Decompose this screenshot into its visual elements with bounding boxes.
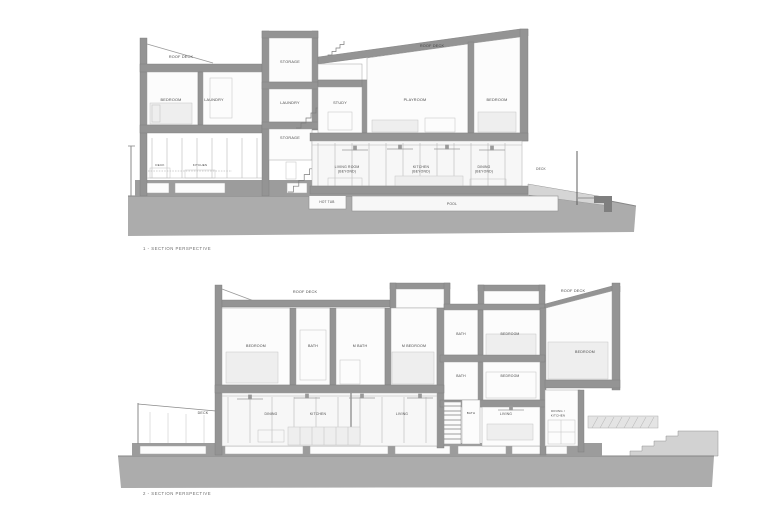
section-perspective-2-drawing: ROOF DECK BEDROOM BATH M BATH M BEDROOM … [0,260,780,520]
label-dining-beyond: DINING [477,165,490,169]
left-guardrail [128,146,135,196]
label-roof-deck-right-1: ROOF DECK [420,44,445,48]
label-dining-beyond-sub: (BEYOND) [475,170,493,174]
label-dining-kitchen-suite-1: DINING / [551,409,565,413]
label-master-bath: M BATH [353,344,368,348]
terrain-steps [630,431,718,456]
label-kitchen-entry-1: KITCHEN [193,163,208,167]
label-living-room-beyond: LIVING ROOM [335,165,360,169]
label-master-bedroom: M BEDROOM [402,344,426,348]
label-playroom-1: PLAYROOM [404,98,427,102]
room-bedroom-mid-right [483,362,540,400]
label-bedroom-nw: BEDROOM [246,344,266,348]
room-storage-lower [269,129,312,160]
left-block-glazing [147,138,262,178]
label-laundry-upper-1: LAUNDRY [204,98,224,102]
label-dining-2: DINING [264,412,277,416]
label-kitchen-beyond: KITCHEN [413,165,430,169]
label-hot-tub: HOT TUB [319,200,334,204]
label-living-room-beyond-sub: (BEYOND) [338,170,356,174]
label-deck-entry-1: DECK [155,163,164,167]
left-deck [138,403,216,444]
label-kitchen-beyond-sub: (BEYOND) [412,170,430,174]
stair-section [444,402,461,444]
ground-mass-2 [118,456,714,488]
label-deck-right-1: DECK [536,167,546,171]
label-bath-lower: BATH [467,411,476,415]
label-roof-deck-left-2: ROOF DECK [293,290,318,294]
label-roof-deck-right-2: ROOF DECK [561,289,586,293]
section-perspective-1-drawing: ROOF DECK BEDROOM LAUNDRY STORAGE LAUNDR… [0,0,780,260]
room-playroom [367,44,468,133]
room-study [318,87,362,133]
label-dining-kitchen-suite-2: KITCHEN [551,414,566,418]
building-2 [215,283,620,455]
label-deck-2: DECK [198,411,209,415]
label-roof-deck-left-1: ROOF DECK [169,55,194,59]
label-kitchen-2: KITCHEN [310,412,327,416]
label-bath-mid-right: BATH [456,374,466,378]
label-pool: POOL [447,202,457,206]
label-storage-top-1: STORAGE [280,60,300,64]
label-living-main: LIVING [396,412,408,416]
label-storage-lower-1: STORAGE [280,136,300,140]
architecture-sheet: ROOF DECK BEDROOM LAUNDRY STORAGE LAUNDR… [0,0,780,520]
caption-section-2: 2 - SECTION PERSPECTIVE [143,491,211,496]
label-bedroom-far-right: BEDROOM [575,350,595,354]
label-bedroom-mid-right: BEDROOM [501,374,520,378]
room-laundry-mid [269,89,312,122]
label-bath-upper-right: BATH [456,332,466,336]
label-bath-upper-left: BATH [308,344,318,348]
left-block [140,38,262,196]
label-study-1: STUDY [333,101,347,105]
caption-section-1: 1 - SECTION PERSPECTIVE [143,246,211,251]
room-bath-mid-right [444,362,478,400]
hedge-band [588,416,658,428]
label-bedroom-right-1: BEDROOM [486,98,507,102]
label-living-suite: LIVING [500,412,512,416]
room-bath-lower [462,400,480,444]
label-bedroom-upper-right: BEDROOM [501,332,520,336]
label-bedroom-left-1: BEDROOM [160,98,181,102]
label-laundry-mid-1: LAUNDRY [280,101,300,105]
